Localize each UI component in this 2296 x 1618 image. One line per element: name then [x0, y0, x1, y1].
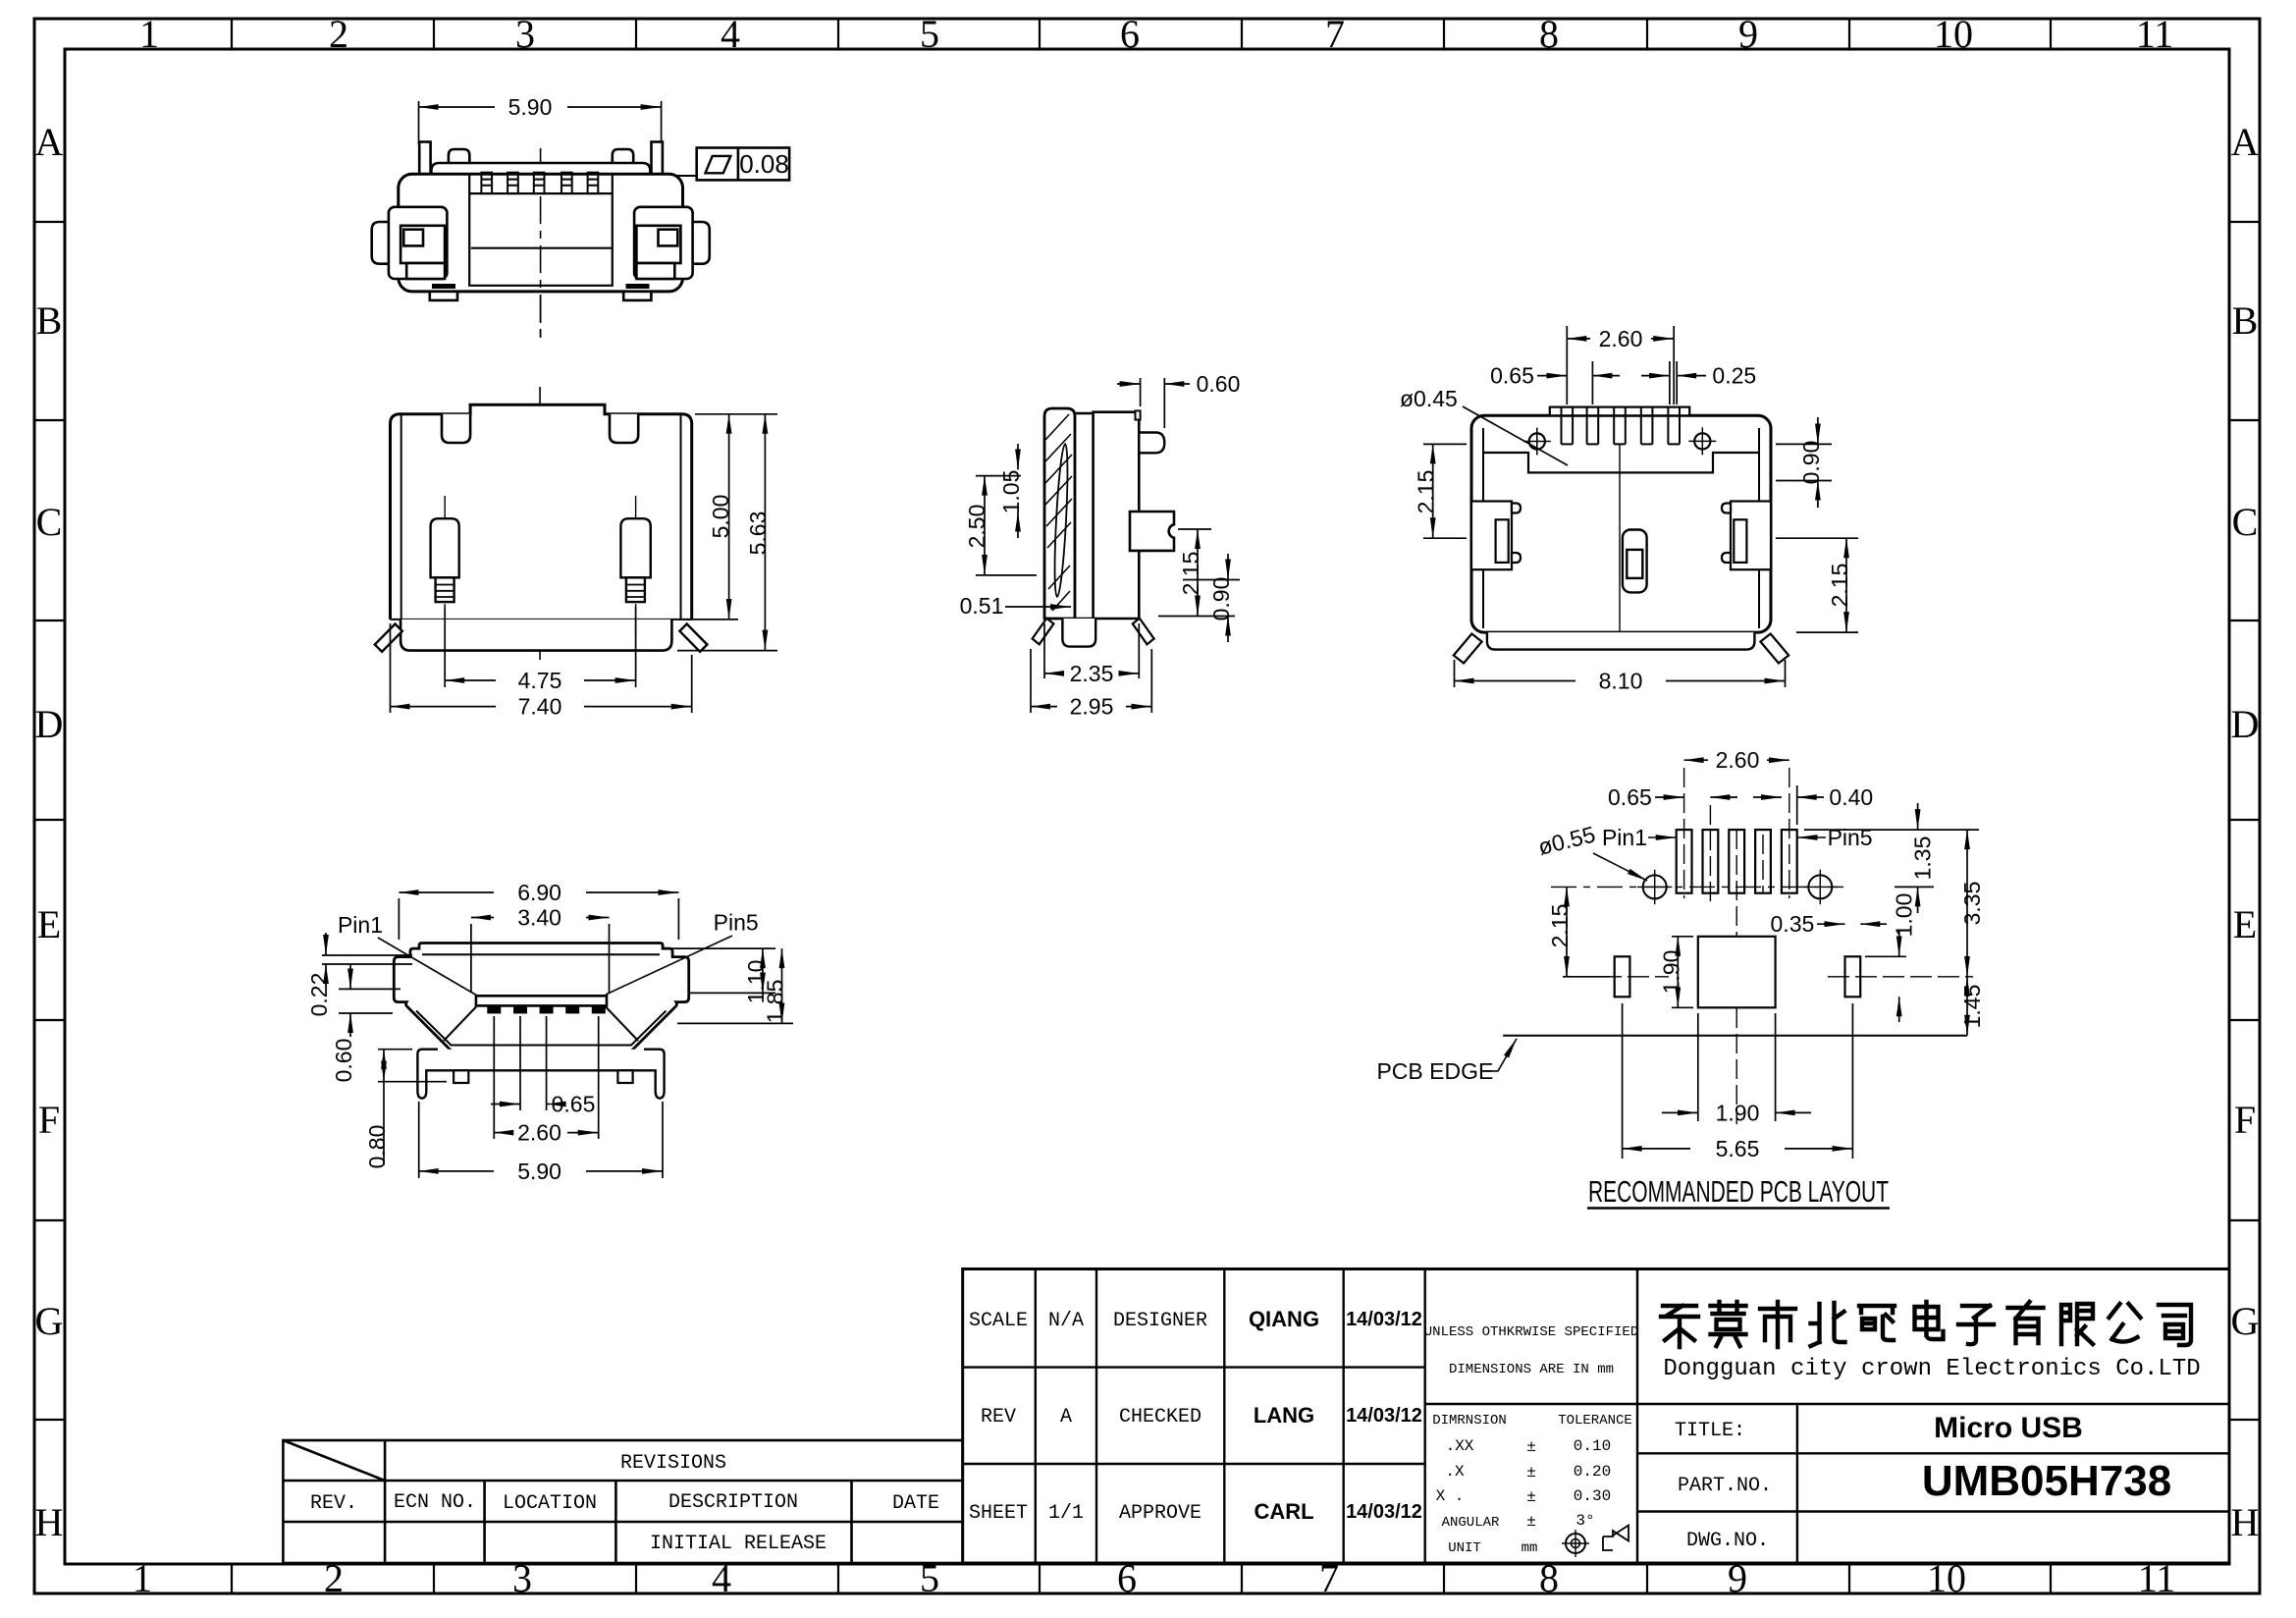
svg-text:14/03/12: 14/03/12	[1346, 1405, 1422, 1427]
svg-text:DIMRNSION: DIMRNSION	[1432, 1413, 1507, 1429]
svg-text:4.75: 4.75	[518, 668, 562, 693]
svg-text:±: ±	[1526, 1438, 1536, 1456]
svg-text:1.05: 1.05	[998, 470, 1024, 514]
svg-text:.XX: .XX	[1446, 1437, 1474, 1455]
svg-text:2.15: 2.15	[1547, 904, 1573, 948]
svg-text:9: 9	[1738, 12, 1758, 56]
svg-text:2.50: 2.50	[964, 505, 989, 549]
svg-text:±: ±	[1526, 1464, 1536, 1482]
svg-text:2.15: 2.15	[1827, 564, 1852, 608]
svg-text:SHEET: SHEET	[969, 1502, 1028, 1525]
svg-text:±: ±	[1526, 1513, 1536, 1531]
svg-text:2.95: 2.95	[1070, 694, 1114, 720]
svg-text:F: F	[2234, 1098, 2256, 1142]
svg-text:RECOMMANDED PCB LAYOUT: RECOMMANDED PCB LAYOUT	[1588, 1174, 1889, 1209]
svg-text:PCB EDGE: PCB EDGE	[1376, 1058, 1493, 1084]
svg-text:E: E	[37, 902, 61, 946]
svg-text:APPROVE: APPROVE	[1119, 1502, 1201, 1525]
svg-text:.X: .X	[1445, 1463, 1465, 1481]
svg-text:SCALE: SCALE	[969, 1310, 1028, 1332]
svg-text:ANGULAR: ANGULAR	[1442, 1515, 1500, 1531]
svg-text:3: 3	[515, 12, 535, 56]
svg-text:2: 2	[329, 12, 348, 56]
svg-text:0.65: 0.65	[1608, 784, 1652, 810]
svg-text:0.80: 0.80	[364, 1125, 390, 1169]
svg-text:DWG.NO.: DWG.NO.	[1686, 1530, 1769, 1552]
svg-text:0.40: 0.40	[1829, 784, 1873, 810]
svg-text:2.60: 2.60	[517, 1120, 561, 1146]
svg-text:Pin5: Pin5	[1828, 825, 1873, 850]
svg-text:5.90: 5.90	[517, 1159, 561, 1184]
svg-text:0.35: 0.35	[1771, 911, 1815, 937]
svg-text:0.08: 0.08	[739, 149, 789, 179]
svg-text:C: C	[36, 500, 63, 544]
svg-text:D: D	[2231, 702, 2260, 746]
svg-text:UNIT: UNIT	[1448, 1540, 1481, 1556]
svg-text:11: 11	[2136, 12, 2174, 56]
svg-text:1.90: 1.90	[1658, 950, 1683, 995]
svg-text:REVISIONS: REVISIONS	[620, 1452, 726, 1475]
svg-text:QIANG: QIANG	[1249, 1307, 1319, 1331]
svg-text:REV.: REV.	[310, 1492, 357, 1515]
svg-text:4: 4	[721, 12, 740, 56]
svg-text:3.40: 3.40	[517, 905, 561, 931]
svg-text:3°: 3°	[1575, 1512, 1594, 1530]
svg-text:14/03/12: 14/03/12	[1346, 1501, 1422, 1523]
svg-text:0.30: 0.30	[1574, 1487, 1611, 1505]
svg-text:0.90: 0.90	[1208, 577, 1234, 621]
svg-text:A: A	[2231, 120, 2260, 164]
svg-text:UNLESS OTHKRWISE SPECIFIED: UNLESS OTHKRWISE SPECIFIED	[1424, 1324, 1638, 1340]
svg-text:LOCATION: LOCATION	[503, 1492, 597, 1515]
svg-text:Dongguan city crown Electronic: Dongguan city crown Electronics Co.LTD	[1663, 1356, 2200, 1382]
svg-text:0.60: 0.60	[331, 1039, 356, 1083]
svg-text:PART.NO.: PART.NO.	[1678, 1475, 1772, 1497]
svg-text:F: F	[38, 1098, 60, 1142]
svg-text:B: B	[36, 298, 63, 343]
svg-text:1: 1	[133, 1556, 152, 1600]
svg-text:8.10: 8.10	[1599, 669, 1643, 694]
svg-text:TOLERANCE: TOLERANCE	[1558, 1413, 1632, 1429]
svg-text:mm: mm	[1522, 1540, 1538, 1556]
svg-text:0.65: 0.65	[1490, 363, 1534, 389]
svg-text:0.25: 0.25	[1712, 363, 1756, 389]
svg-text:1.90: 1.90	[1716, 1100, 1760, 1125]
svg-text:ECN NO.: ECN NO.	[394, 1491, 476, 1514]
svg-text:A: A	[1060, 1406, 1072, 1429]
svg-text:TITLE:: TITLE:	[1675, 1420, 1745, 1442]
svg-text:ø0.45: ø0.45	[1400, 386, 1458, 411]
svg-text:DATE: DATE	[892, 1492, 939, 1515]
svg-text:0.90: 0.90	[1798, 441, 1824, 485]
svg-text:ø0.55: ø0.55	[1535, 821, 1597, 859]
svg-text:E: E	[2233, 902, 2257, 946]
svg-text:CARL: CARL	[1254, 1499, 1313, 1524]
svg-text:0.60: 0.60	[1197, 371, 1241, 397]
svg-text:14/03/12: 14/03/12	[1346, 1309, 1422, 1330]
svg-text:C: C	[2232, 500, 2259, 544]
svg-text:5.90: 5.90	[508, 94, 553, 120]
svg-text:2.15: 2.15	[1178, 552, 1203, 596]
svg-text:Micro USB: Micro USB	[1934, 1412, 2083, 1444]
svg-text:10: 10	[1934, 12, 1973, 56]
svg-text:G: G	[35, 1299, 64, 1343]
svg-text:2.15: 2.15	[1414, 470, 1439, 514]
svg-text:1.45: 1.45	[1959, 985, 1985, 1029]
svg-text:2.35: 2.35	[1070, 661, 1114, 686]
svg-text:0.65: 0.65	[552, 1092, 596, 1117]
svg-text:1.35: 1.35	[1910, 836, 1936, 881]
svg-text:INITIAL RELEASE: INITIAL RELEASE	[650, 1533, 827, 1555]
svg-text:2.60: 2.60	[1599, 326, 1643, 351]
svg-text:0.22: 0.22	[306, 973, 332, 1017]
svg-text:5: 5	[920, 12, 939, 56]
svg-text:CHECKED: CHECKED	[1119, 1406, 1201, 1429]
svg-text:1.85: 1.85	[763, 980, 788, 1024]
svg-text:0.20: 0.20	[1574, 1463, 1611, 1481]
svg-text:X .: X .	[1436, 1487, 1465, 1505]
svg-text:5.00: 5.00	[708, 495, 733, 539]
svg-text:H: H	[2231, 1500, 2260, 1544]
svg-text:LANG: LANG	[1254, 1403, 1314, 1428]
svg-text:8: 8	[1539, 12, 1559, 56]
svg-text:2.60: 2.60	[1716, 747, 1760, 773]
svg-text:DESCRIPTION: DESCRIPTION	[668, 1491, 798, 1514]
svg-text:Pin1: Pin1	[1602, 825, 1647, 850]
svg-text:±: ±	[1526, 1488, 1536, 1506]
svg-text:N/A: N/A	[1048, 1310, 1084, 1332]
svg-text:DIMENSIONS ARE IN mm: DIMENSIONS ARE IN mm	[1449, 1362, 1614, 1377]
svg-text:D: D	[35, 702, 64, 746]
svg-text:3.35: 3.35	[1959, 882, 1985, 926]
svg-text:7.40: 7.40	[518, 694, 562, 720]
svg-text:Pin5: Pin5	[714, 910, 759, 936]
svg-text:7: 7	[1325, 12, 1345, 56]
svg-text:A: A	[35, 120, 64, 164]
svg-text:5.63: 5.63	[745, 512, 771, 556]
svg-text:6: 6	[1120, 12, 1140, 56]
svg-text:UMB05H738: UMB05H738	[1922, 1457, 2171, 1505]
svg-text:5.65: 5.65	[1716, 1136, 1760, 1161]
svg-text:Pin1: Pin1	[338, 912, 383, 938]
svg-text:B: B	[2232, 298, 2259, 343]
svg-text:1: 1	[139, 12, 159, 56]
svg-text:REV: REV	[981, 1406, 1016, 1429]
svg-text:1.00: 1.00	[1892, 893, 1917, 938]
svg-text:1/1: 1/1	[1048, 1502, 1084, 1525]
svg-text:6.90: 6.90	[517, 880, 561, 905]
svg-text:DESIGNER: DESIGNER	[1113, 1310, 1207, 1332]
svg-text:G: G	[2231, 1299, 2260, 1343]
svg-text:H: H	[35, 1500, 64, 1544]
svg-text:0.51: 0.51	[960, 593, 1004, 619]
svg-text:0.10: 0.10	[1574, 1437, 1611, 1455]
